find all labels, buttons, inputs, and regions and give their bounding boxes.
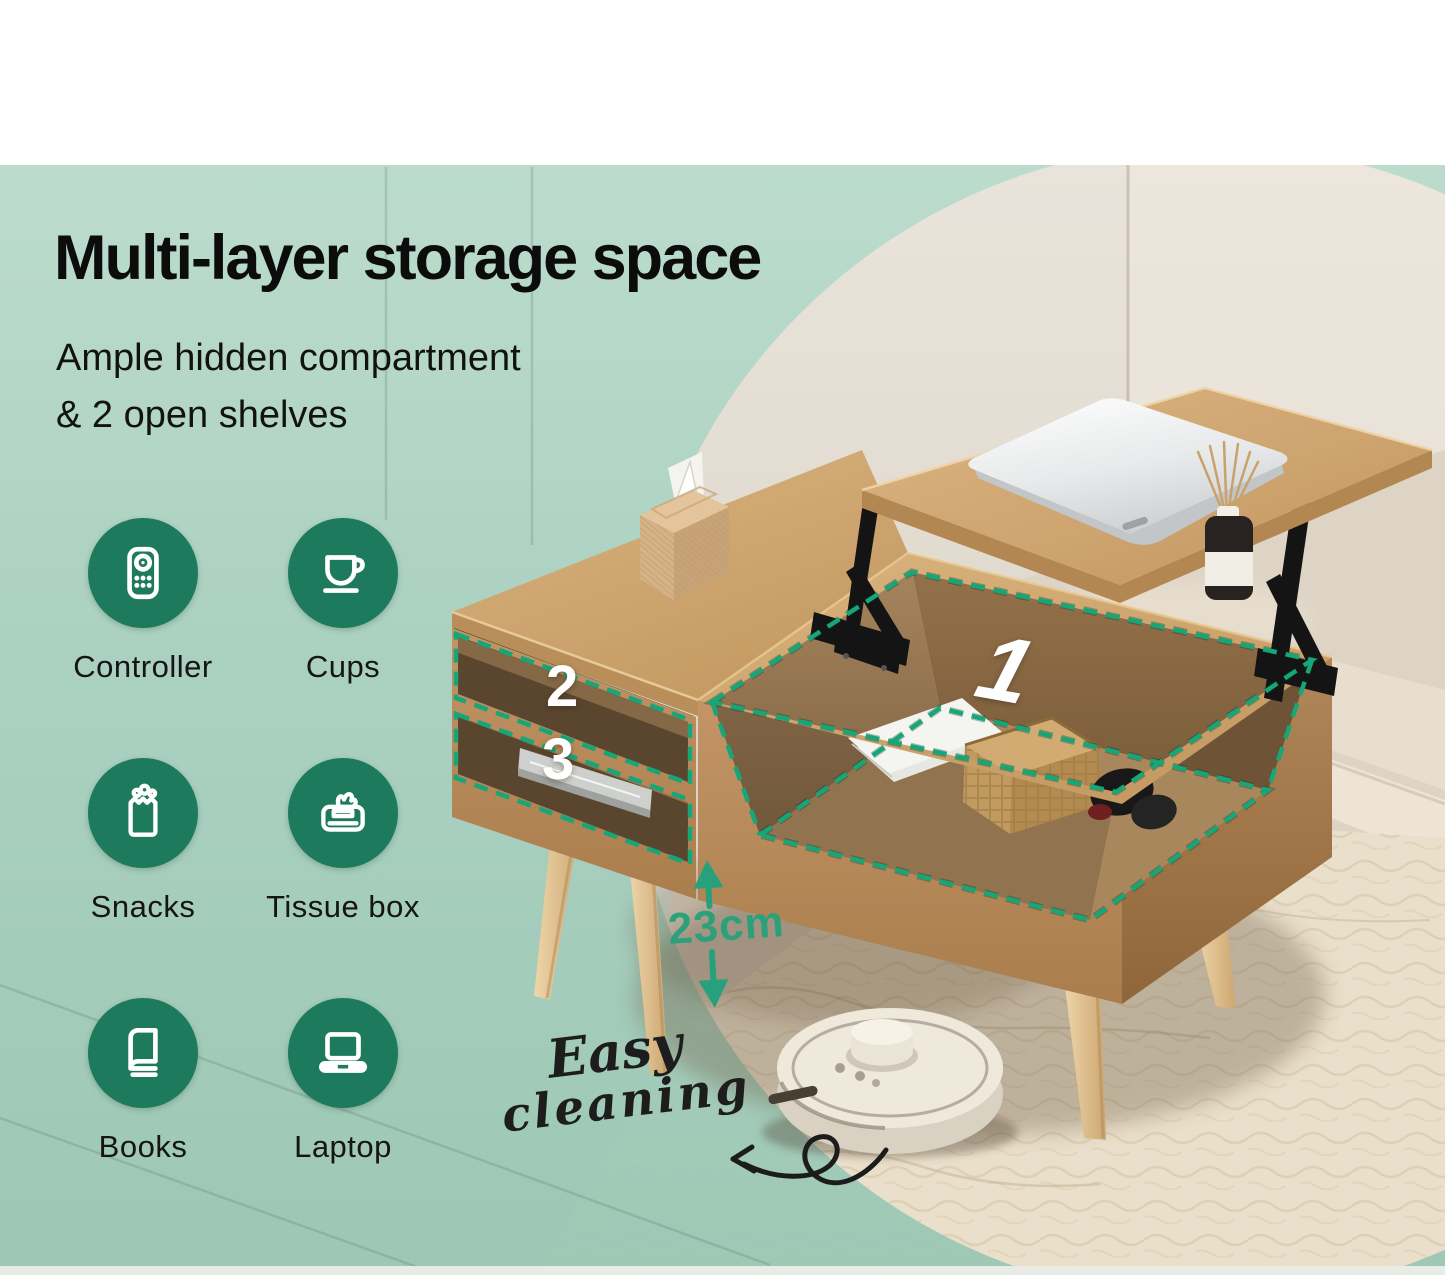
coffee-cup-icon — [312, 542, 374, 604]
feature-label: Cups — [306, 649, 380, 685]
feature-laptop: Laptop — [243, 998, 443, 1238]
feature-books: Books — [43, 998, 243, 1238]
callout-shelf-top: 2 — [546, 653, 578, 720]
tissue-box-icon — [312, 782, 374, 844]
feature-bubble — [88, 998, 198, 1108]
top-margin — [0, 0, 1445, 165]
feature-bubble — [88, 518, 198, 628]
robot-turret — [851, 1019, 913, 1045]
snack-bag-icon — [112, 782, 174, 844]
remote-control-icon — [112, 542, 174, 604]
feature-label: Snacks — [91, 889, 196, 925]
subtitle-line-1: Ample hidden compartment — [56, 330, 521, 387]
feature-tissue-box: Tissue box — [243, 758, 443, 998]
laptop-icon — [312, 1022, 374, 1084]
clearance-measurement: 23cm — [666, 897, 786, 955]
subtitle-line-2: & 2 open shelves — [56, 387, 521, 444]
feature-snacks: Snacks — [43, 758, 243, 998]
bottom-margin — [0, 1266, 1445, 1275]
book-icon — [112, 1022, 174, 1084]
page-subtitle: Ample hidden compartment & 2 open shelve… — [56, 330, 521, 444]
feature-bubble — [88, 758, 198, 868]
page-title: Multi-layer storage space — [54, 222, 760, 294]
feature-label: Books — [99, 1129, 188, 1165]
callout-shelf-bottom: 3 — [542, 726, 574, 793]
feature-label: Tissue box — [266, 889, 420, 925]
feature-bubble — [288, 998, 398, 1108]
product-infographic: Multi-layer storage space Ample hidden c… — [0, 0, 1445, 1275]
feature-list: Controller Cups Snacks — [43, 518, 443, 1238]
feature-label: Laptop — [294, 1129, 392, 1165]
feature-label: Controller — [73, 649, 212, 685]
feature-cups: Cups — [243, 518, 443, 758]
feature-bubble — [288, 518, 398, 628]
feature-bubble — [288, 758, 398, 868]
feature-controller: Controller — [43, 518, 243, 758]
